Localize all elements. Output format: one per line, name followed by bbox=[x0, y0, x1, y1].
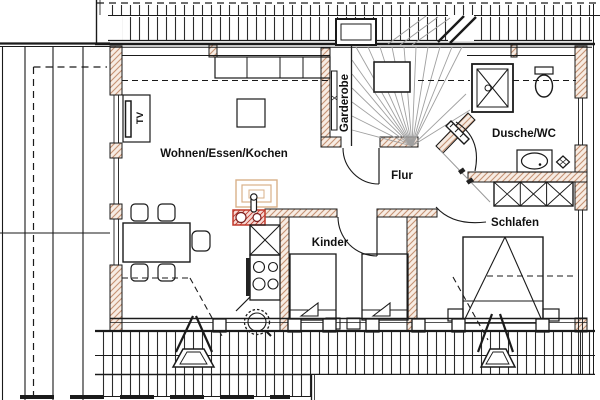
nightstand bbox=[347, 318, 360, 329]
stove bbox=[250, 255, 280, 300]
top-roof-band bbox=[95, 0, 600, 45]
toilet bbox=[536, 75, 553, 97]
double-bed bbox=[463, 237, 543, 323]
door-arc-bedroom bbox=[436, 207, 486, 223]
label-bathroom: Dusche/WC bbox=[492, 128, 556, 140]
label-wardrobe-room: Garderobe bbox=[339, 74, 351, 132]
sideboard bbox=[215, 57, 330, 78]
floor-plan-page: Wohnen/Essen/Kochen Flur Kinder Schlafen… bbox=[0, 0, 600, 400]
chimney-box bbox=[336, 19, 376, 45]
coat-rail bbox=[332, 71, 338, 130]
label-living-room: Wohnen/Essen/Kochen bbox=[160, 148, 288, 160]
label-kids-room: Kinder bbox=[312, 237, 349, 249]
tv bbox=[126, 101, 132, 137]
armchair bbox=[237, 99, 265, 127]
kitchen bbox=[233, 180, 280, 336]
garderobe-area bbox=[332, 71, 338, 130]
bottom-roof-band bbox=[20, 314, 600, 400]
left-roof-area bbox=[0, 44, 110, 400]
dining-table bbox=[123, 204, 210, 281]
floor-plan-canvas: Wohnen/Essen/Kochen Flur Kinder Schlafen… bbox=[0, 0, 600, 400]
label-hall: Flur bbox=[391, 170, 413, 182]
living-room bbox=[123, 57, 330, 281]
bedroom bbox=[448, 182, 573, 323]
label-tv: TV bbox=[135, 111, 146, 124]
door-arc-living bbox=[343, 148, 379, 184]
label-bedroom: Schlafen bbox=[491, 217, 539, 229]
stair-landing bbox=[374, 62, 410, 92]
toilet-tank bbox=[535, 67, 553, 74]
